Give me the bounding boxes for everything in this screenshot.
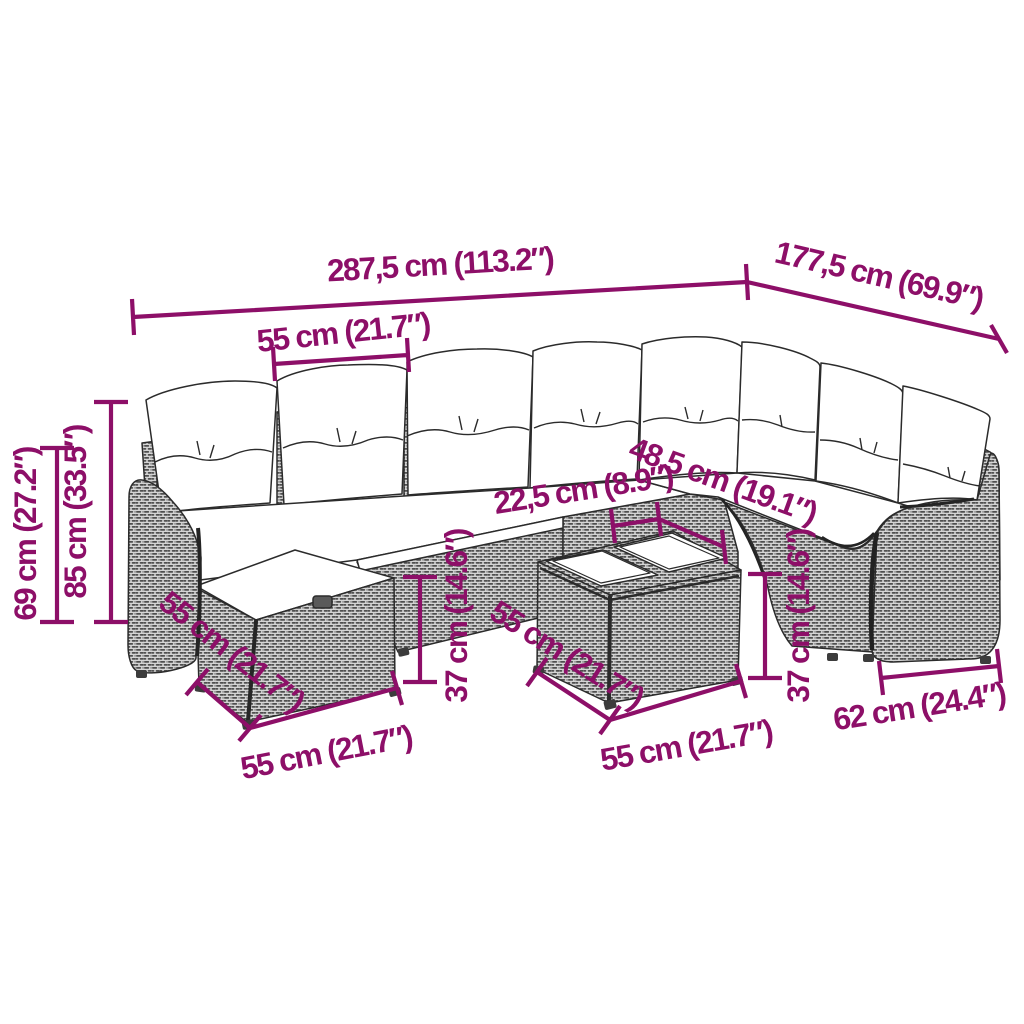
svg-text:37 cm (14.6″): 37 cm (14.6″) [438, 529, 474, 703]
svg-text:37 cm (14.6″): 37 cm (14.6″) [780, 529, 816, 703]
svg-text:69 cm (27.2″): 69 cm (27.2″) [7, 447, 43, 621]
svg-text:85 cm (33.5″): 85 cm (33.5″) [57, 425, 93, 599]
